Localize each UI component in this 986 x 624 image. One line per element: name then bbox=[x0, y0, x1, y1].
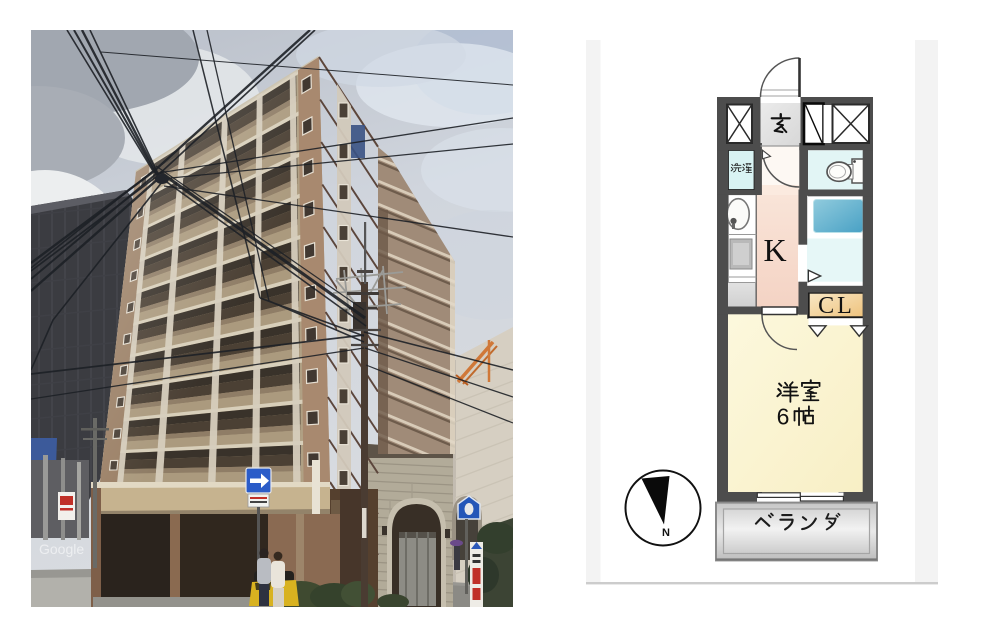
svg-text:6: 6 bbox=[777, 404, 790, 430]
svg-text:CL: CL bbox=[818, 293, 855, 319]
svg-text:N: N bbox=[662, 527, 670, 539]
svg-text:K: K bbox=[763, 232, 786, 268]
svg-text:Google: Google bbox=[39, 541, 84, 557]
